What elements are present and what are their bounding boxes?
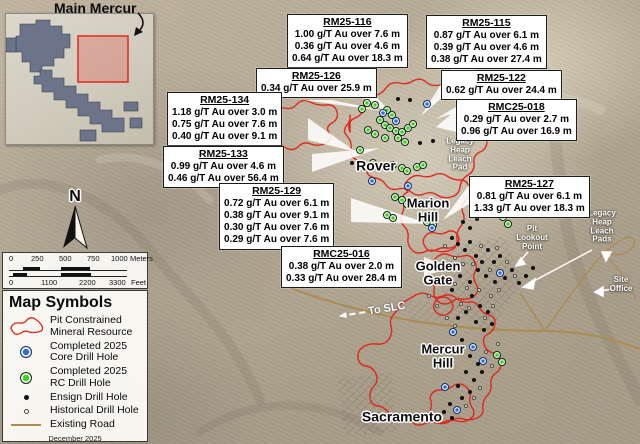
- core-drill-hole: [453, 406, 461, 414]
- callout-assay-line: 0.99 g/T Au over 4.6 m: [168, 161, 279, 173]
- scale-feet-row: 0110022003300Feet: [3, 278, 147, 287]
- historical-drill-hole: [483, 316, 487, 320]
- legend-items: Pit Constrained Mineral ResourceComplete…: [3, 314, 147, 432]
- map-stage: N Main Mercur 02505007501000Meters 01100…: [0, 0, 640, 444]
- ensign-drill-hole: [468, 354, 472, 358]
- ensign-drill-hole: [463, 248, 467, 252]
- rc-drill-hole: [356, 146, 364, 154]
- legend-title: Map Symbols: [9, 294, 147, 312]
- callout-assay-line: 0.87 g/T Au over 6.1 m: [431, 30, 542, 42]
- core-drill-hole: [469, 343, 477, 351]
- label-golden-gate: Golden Gate: [416, 259, 461, 286]
- road-icon: [5, 424, 47, 426]
- rc-drill-hole: [401, 138, 409, 146]
- ensign-drill-hole: [461, 220, 465, 224]
- core-drill-hole: [379, 109, 387, 117]
- callout-rmc25-018: RMC25-0180.29 g/T Au over 2.7 m0.96 g/T …: [456, 99, 577, 141]
- core-drill-hole: [368, 177, 376, 185]
- historical-drill-hole: [495, 246, 499, 250]
- callout-drillhole-id: RM25-116: [292, 16, 403, 29]
- callout-drillhole-id: RM25-129: [224, 185, 329, 198]
- ensign-drill-hole: [478, 304, 482, 308]
- callout-assay-line: 0.29 g/T Au over 7.6 m: [224, 234, 329, 246]
- historical-drill-hole: [467, 306, 471, 310]
- ensign-drill-hole: [468, 280, 472, 284]
- ensign-drill-hole: [492, 260, 496, 264]
- callout-assay-line: 0.96 g/T Au over 16.9 m: [461, 126, 572, 138]
- scale-meters-bar: [9, 266, 127, 271]
- ensign-drill-hole: [470, 294, 474, 298]
- scale-feet-bar: [9, 272, 127, 277]
- historical-drill-hole: [488, 268, 492, 272]
- scale-tick: 0: [9, 278, 13, 287]
- label-rover: Rover: [356, 159, 396, 174]
- north-arrow: N: [58, 188, 92, 257]
- scale-tick: 250: [31, 254, 44, 263]
- legend-item-road: Existing Road: [3, 418, 147, 432]
- historical-drill-hole: [465, 286, 469, 290]
- scale-tick: 750: [87, 254, 100, 263]
- historical-drill-hole: [443, 244, 447, 248]
- ensign-drill-hole: [442, 410, 446, 414]
- ensign-drill-hole: [464, 310, 468, 314]
- ensign-drill-hole: [531, 266, 535, 270]
- rc-drill-hole: [371, 130, 379, 138]
- main-mercur-extent-box: [78, 36, 128, 82]
- scale-tick: 2200: [79, 278, 96, 287]
- label-sacramento: Sacramento: [362, 410, 442, 425]
- ensign-drill-hole: [486, 248, 490, 252]
- legend-item-label: Historical Drill Hole: [50, 405, 139, 417]
- callout-rm25-116: RM25-1161.00 g/T Au over 7.6 m0.36 g/T A…: [287, 14, 408, 68]
- historical-drill-hole: [464, 404, 468, 408]
- legend-item-label: Completed 2025 RC Drill Hole: [50, 366, 127, 390]
- inset-title: Main Mercur: [54, 0, 136, 16]
- ensign-drill-hole: [460, 396, 464, 400]
- ensign-drill-hole: [486, 310, 490, 314]
- historical-drill-hole: [445, 316, 449, 320]
- label-marion-hill: Marion Hill: [407, 196, 450, 223]
- ensign-drill-hole: [468, 390, 472, 394]
- ensign-drill-hole: [480, 260, 484, 264]
- ensign-drill-hole: [484, 274, 488, 278]
- ensign-drill-hole: [474, 320, 478, 324]
- callout-rm25-133: RM25-1330.99 g/T Au over 4.6 m0.46 g/T A…: [163, 146, 284, 188]
- historical-drill-hole: [461, 262, 465, 266]
- callout-assay-line: 0.29 g/T Au over 2.7 m: [461, 114, 572, 126]
- ensign-drill-hole: [503, 276, 507, 280]
- legend-date: December 2025: [3, 434, 147, 442]
- label-site-office: Site Office: [610, 276, 633, 294]
- callout-drillhole-id: RM25-134: [172, 94, 277, 107]
- scale-bar: 02505007501000Meters 0110022003300Feet: [2, 252, 148, 289]
- callout-assay-line: 0.40 g/T Au over 9.1 m: [172, 131, 277, 143]
- core-drill-hole: [479, 357, 487, 365]
- callout-rm25-129: RM25-1290.72 g/T Au over 6.1 m0.38 g/T A…: [219, 183, 334, 250]
- callout-rmc25-016: RMC25-0160.38 g/T Au over 2.0 m0.33 g/T …: [281, 246, 402, 288]
- scale-tick: 500: [59, 254, 72, 263]
- north-arrow-glyph: [60, 204, 90, 252]
- rc-drill-hole: [381, 134, 389, 142]
- core-drill-hole: [404, 182, 412, 190]
- ensign-drill-hole: [450, 288, 454, 292]
- scale-tick: 1000: [111, 254, 128, 263]
- callout-assay-line: 0.39 g/T Au over 4.6 m: [431, 42, 542, 54]
- historical-drill-hole: [478, 386, 482, 390]
- callout-assay-line: 0.36 g/T Au over 4.6 m: [292, 41, 403, 53]
- ensign-drill-hole: [472, 378, 476, 382]
- callout-assay-line: 0.64 g/T Au over 18.3 m: [292, 53, 403, 65]
- ensign-drill-hole: [524, 274, 528, 278]
- ensign-drill-hole: [456, 242, 460, 246]
- core-hole-icon: [5, 346, 47, 358]
- callout-assay-line: 0.81 g/T Au over 6.1 m: [474, 191, 585, 203]
- ensign-drill-hole: [450, 416, 454, 420]
- ensign-drill-hole: [510, 268, 514, 272]
- ensign-drill-hole: [498, 254, 502, 258]
- ensign-hole-icon: [5, 395, 47, 400]
- ensign-drill-hole: [490, 322, 494, 326]
- historical-drill-hole: [490, 364, 494, 368]
- callout-drillhole-id: RM25-133: [168, 148, 279, 161]
- historical-drill-hole: [427, 294, 431, 298]
- ensign-drill-hole: [474, 254, 478, 258]
- ensign-drill-hole: [456, 384, 460, 388]
- legend-item-pit-outline: Pit Constrained Mineral Resource: [3, 314, 147, 340]
- rc-drill-hole: [358, 105, 366, 113]
- ensign-drill-hole: [464, 370, 468, 374]
- label-pit-lookout-point: Pit Lookout Point: [516, 225, 548, 251]
- callout-drillhole-id: RM25-115: [431, 17, 542, 30]
- legend: Map Symbols Pit Constrained Mineral Reso…: [2, 290, 148, 442]
- legend-item-label: Pit Constrained Mineral Resource: [50, 315, 132, 339]
- rc-drill-hole: [364, 126, 372, 134]
- road-direction-dashes: [349, 311, 365, 315]
- core-drill-hole: [423, 100, 431, 108]
- rc-drill-hole: [389, 214, 397, 222]
- ensign-drill-hole: [517, 281, 521, 285]
- callout-drillhole-id: RMC25-018: [461, 101, 572, 114]
- core-drill-hole: [428, 224, 436, 232]
- scale-meters-row: 02505007501000Meters: [3, 254, 147, 263]
- ensign-drill-hole: [350, 161, 354, 165]
- legend-item-historical-hole: Historical Drill Hole: [3, 404, 147, 418]
- callout-assay-line: 0.72 g/T Au over 6.1 m: [224, 198, 329, 210]
- historical-drill-hole: [496, 342, 500, 346]
- rc-drill-hole: [409, 120, 417, 128]
- historical-drill-hole: [453, 324, 457, 328]
- ensign-drill-hole: [431, 139, 435, 143]
- core-drill-hole: [392, 117, 400, 125]
- ensign-drill-hole: [468, 226, 472, 230]
- ensign-drill-hole: [418, 141, 422, 145]
- callout-rm25-127: RM25-1270.81 g/T Au over 6.1 m1.33 g/T A…: [469, 176, 590, 218]
- rc-drill-hole: [498, 358, 506, 366]
- core-drill-hole: [449, 328, 457, 336]
- callout-drillhole-id: RM25-127: [474, 178, 585, 191]
- label-legacy-heap-leach-pads: Legacy Heap Leach Pads: [588, 209, 616, 244]
- historical-drill-hole: [472, 396, 476, 400]
- label-mercur-hill: Mercur Hill: [421, 342, 464, 369]
- callout-drillhole-id: RM25-122: [446, 72, 557, 85]
- callout-assay-line: 1.18 g/T Au over 3.0 m: [172, 107, 277, 119]
- legend-item-label: Completed 2025 Core Drill Hole: [50, 341, 127, 365]
- historical-drill-hole: [491, 304, 495, 308]
- core-drill-hole: [441, 383, 449, 391]
- historical-drill-hole: [497, 288, 501, 292]
- historical-drill-hole: [435, 304, 439, 308]
- ensign-drill-hole: [396, 97, 400, 101]
- legend-item-ensign-hole: Ensign Drill Hole: [3, 391, 147, 405]
- scale-tick: 3300: [109, 278, 126, 287]
- historical-drill-hole: [479, 244, 483, 248]
- rc-drill-hole: [403, 167, 411, 175]
- historical-drill-hole: [505, 260, 509, 264]
- pit-outline-icon: [5, 316, 47, 338]
- ensign-drill-hole: [476, 362, 480, 366]
- historical-drill-hole: [459, 302, 463, 306]
- rc-drill-hole: [504, 220, 512, 228]
- ensign-drill-hole: [408, 98, 412, 102]
- historical-drill-hole: [484, 350, 488, 354]
- rc-hole-icon: [5, 372, 47, 384]
- ensign-drill-hole: [448, 402, 452, 406]
- historical-drill-hole: [513, 274, 517, 278]
- scale-tick: 0: [9, 254, 13, 263]
- scale-unit: Meters: [130, 254, 153, 263]
- callout-assay-line: 0.33 g/T Au over 28.4 m: [286, 273, 397, 285]
- historical-drill-hole: [471, 262, 475, 266]
- scale-unit: Feet: [131, 278, 146, 287]
- rc-drill-hole: [371, 101, 379, 109]
- callout-drillhole-id: RMC25-016: [286, 248, 397, 261]
- callout-assay-line: 0.30 g/T Au over 7.6 m: [224, 222, 329, 234]
- ensign-drill-hole: [493, 280, 497, 284]
- main-mercur-arrow: [126, 11, 150, 41]
- historical-drill-hole: [489, 294, 493, 298]
- callout-rm25-115: RM25-1150.87 g/T Au over 6.1 m0.39 g/T A…: [426, 15, 547, 69]
- ensign-drill-hole: [482, 328, 486, 332]
- legend-item-label: Existing Road: [50, 419, 115, 431]
- ensign-drill-hole: [456, 316, 460, 320]
- ensign-drill-hole: [468, 240, 472, 244]
- callout-drillhole-id: RM25-126: [261, 70, 372, 83]
- scale-tick: 1100: [41, 278, 57, 287]
- callout-assay-line: 0.38 g/T Au over 9.1 m: [224, 210, 329, 222]
- legend-item-rc-hole: Completed 2025 RC Drill Hole: [3, 365, 147, 391]
- ensign-drill-hole: [476, 268, 480, 272]
- callout-rm25-134: RM25-1341.18 g/T Au over 3.0 m0.75 g/T A…: [167, 92, 282, 146]
- historical-hole-icon: [5, 409, 47, 414]
- callout-assay-line: 0.38 g/T Au over 27.4 m: [431, 54, 542, 66]
- callout-assay-line: 0.75 g/T Au over 7.6 m: [172, 119, 277, 131]
- legend-item-core-hole: Completed 2025 Core Drill Hole: [3, 340, 147, 366]
- label-legacy-heap-leach-pad: Legacy Heap Leach Pad: [446, 137, 474, 172]
- callout-rm25-122: RM25-1220.62 g/T Au over 24.4 m: [441, 70, 562, 100]
- callout-assay-line: 0.62 g/T Au over 24.4 m: [446, 85, 557, 97]
- historical-drill-hole: [477, 288, 481, 292]
- callout-assay-line: 0.38 g/T Au over 2.0 m: [286, 261, 397, 273]
- callout-assay-line: 1.33 g/T Au over 18.3 m: [474, 203, 585, 215]
- rc-drill-hole: [419, 161, 427, 169]
- ensign-drill-hole: [450, 236, 454, 240]
- ensign-drill-hole: [480, 370, 484, 374]
- legend-item-label: Ensign Drill Hole: [50, 392, 128, 404]
- callout-assay-line: 1.00 g/T Au over 7.6 m: [292, 29, 403, 41]
- road-direction-arrow: [338, 312, 347, 319]
